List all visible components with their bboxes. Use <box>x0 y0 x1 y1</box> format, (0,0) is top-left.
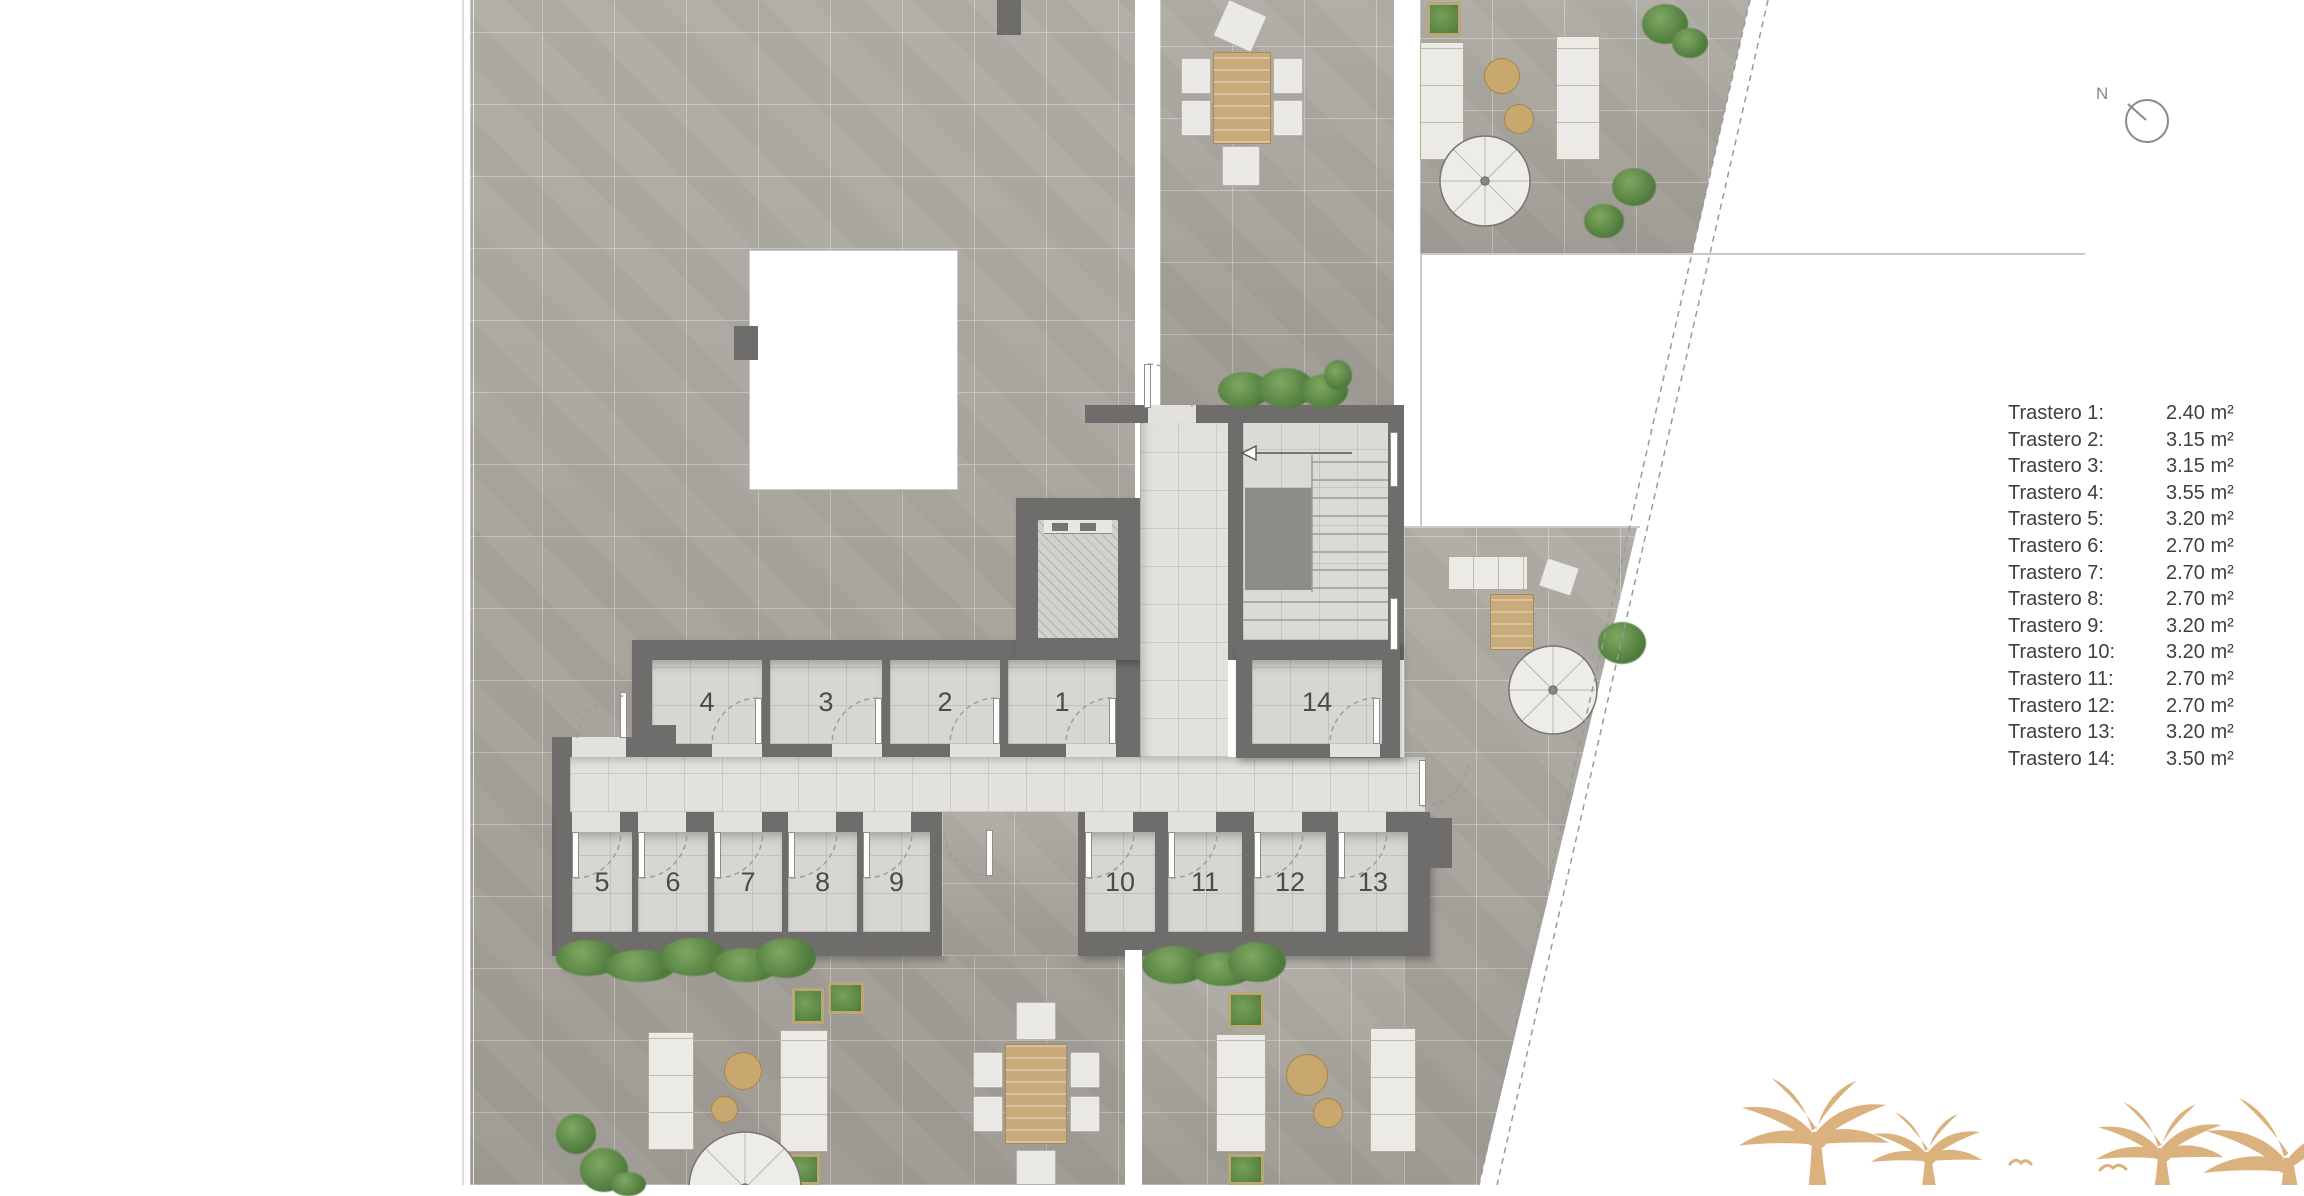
legend-label: Trastero 13: <box>2008 719 2160 746</box>
property-line-left-inner <box>473 0 474 1185</box>
birds-graphic <box>2010 1160 2126 1170</box>
legend-value: 2.70 m² <box>2166 666 2234 693</box>
legend-label: Trastero 11: <box>2008 666 2160 693</box>
bush <box>1598 622 1646 664</box>
area-legend: Trastero 1:2.40 m² Trastero 2:3.15 m² Tr… <box>2008 400 2288 772</box>
legend-row: Trastero 14:3.50 m² <box>2008 746 2288 773</box>
chair <box>1016 1150 1056 1185</box>
room-number: 5 <box>594 867 609 898</box>
door-opening <box>1338 812 1386 832</box>
chair <box>1181 58 1211 94</box>
legend-value: 3.50 m² <box>2166 746 2234 773</box>
legend-row: Trastero 10:3.20 m² <box>2008 639 2288 666</box>
door-opening <box>1085 812 1133 832</box>
planter-box <box>1427 2 1461 36</box>
door-leaf <box>1085 832 1092 878</box>
room-number: 9 <box>889 867 904 898</box>
sun-lounger <box>648 1032 694 1150</box>
door-leaf <box>993 698 1000 744</box>
door-leaf <box>572 832 579 878</box>
trastero-room-1: 1 <box>1008 660 1116 744</box>
legend-value: 2.40 m² <box>2166 400 2234 427</box>
legend-label: Trastero 8: <box>2008 586 2160 613</box>
side-table <box>724 1052 762 1090</box>
side-table <box>1484 58 1520 94</box>
legend-label: Trastero 4: <box>2008 480 2160 507</box>
legend-row: Trastero 4:3.55 m² <box>2008 480 2288 507</box>
wall-notch-room4 <box>652 725 676 744</box>
trastero-room-10: 10 <box>1085 832 1155 932</box>
terrace-divider-wall <box>1125 950 1142 1185</box>
bush <box>1228 942 1286 982</box>
legend-value: 3.55 m² <box>2166 480 2234 507</box>
sun-lounger <box>780 1030 828 1152</box>
legend-value: 2.70 m² <box>2166 560 2234 587</box>
room-number: 13 <box>1358 867 1388 898</box>
roof-opening-left <box>749 250 958 490</box>
chair <box>1273 58 1303 94</box>
legend-value: 3.20 m² <box>2166 639 2234 666</box>
planter-box <box>788 1154 820 1185</box>
legend-value: 2.70 m² <box>2166 586 2234 613</box>
legend-value: 3.20 m² <box>2166 719 2234 746</box>
planter-box <box>1228 992 1264 1028</box>
bush <box>1672 28 1708 58</box>
room-number: 8 <box>815 867 830 898</box>
stair-window <box>1390 598 1398 650</box>
elevator-mechanism-right <box>1080 523 1096 531</box>
legend-row: Trastero 3:3.15 m² <box>2008 453 2288 480</box>
room-number: 3 <box>818 687 833 718</box>
door-opening <box>572 812 620 832</box>
chair <box>973 1052 1003 1088</box>
elevator-shaft <box>1038 520 1118 638</box>
terrace-divider-wall <box>1394 0 1420 255</box>
legend-row: Trastero 7:2.70 m² <box>2008 560 2288 587</box>
legend-value: 2.70 m² <box>2166 693 2234 720</box>
legend-value: 3.15 m² <box>2166 427 2234 454</box>
door-leaf <box>986 830 993 876</box>
bush <box>556 1114 596 1154</box>
door-opening <box>863 812 911 832</box>
planter-box <box>792 988 824 1024</box>
legend-row: Trastero 9:3.20 m² <box>2008 613 2288 640</box>
pillar-mid <box>734 326 758 360</box>
room-number: 11 <box>1191 867 1219 898</box>
legend-label: Trastero 7: <box>2008 560 2160 587</box>
bush <box>1612 168 1656 206</box>
chair <box>1181 100 1211 136</box>
legend-label: Trastero 3: <box>2008 453 2160 480</box>
door-opening <box>832 744 882 757</box>
side-table <box>1313 1098 1343 1128</box>
door-leaf <box>620 692 627 738</box>
door-leaf <box>1373 698 1380 744</box>
door-opening <box>950 744 1000 757</box>
legend-label: Trastero 14: <box>2008 746 2160 773</box>
legend-label: Trastero 1: <box>2008 400 2160 427</box>
legend-label: Trastero 6: <box>2008 533 2160 560</box>
north-label: N <box>2096 84 2108 104</box>
property-line-left <box>462 0 464 1185</box>
door-leaf <box>1109 698 1116 744</box>
side-table <box>1286 1054 1328 1096</box>
terrace-bottom-right <box>1135 956 1404 1185</box>
stair-window <box>1390 432 1398 487</box>
corridor-horizontal <box>570 757 1425 812</box>
door-leaf <box>863 832 870 878</box>
door-opening <box>1168 812 1216 832</box>
room-number: 1 <box>1054 687 1069 718</box>
room-number: 7 <box>740 867 755 898</box>
planter-box <box>828 982 864 1014</box>
door-leaf <box>1254 832 1261 878</box>
room-number: 2 <box>937 687 952 718</box>
bush <box>1584 204 1624 238</box>
door-leaf <box>714 832 721 878</box>
legend-row: Trastero 5:3.20 m² <box>2008 506 2288 533</box>
door-leaf <box>755 698 762 744</box>
trastero-room-12: 12 <box>1254 832 1326 932</box>
side-table <box>711 1096 738 1123</box>
room-number: 4 <box>699 687 714 718</box>
sun-lounger <box>1556 36 1600 160</box>
door-opening <box>1254 812 1302 832</box>
passage-between-9-and-10 <box>942 812 1078 956</box>
room-number: 10 <box>1105 867 1135 898</box>
room-number: 14 <box>1302 687 1332 718</box>
door-opening <box>572 737 626 757</box>
palm-trees-graphic <box>1739 1078 2304 1185</box>
roof-opening-right-bottom-edge <box>1392 526 1640 528</box>
north-compass-icon <box>2126 100 2168 142</box>
door-leaf <box>638 832 645 878</box>
door-leaf <box>1144 364 1151 408</box>
planter-box <box>1228 1154 1264 1185</box>
trastero-room-9: 9 <box>863 832 930 932</box>
trastero-room-7: 7 <box>714 832 782 932</box>
wall-lower-right-nub <box>1430 818 1452 868</box>
door-leaf <box>1338 832 1345 878</box>
legend-row: Trastero 11:2.70 m² <box>2008 666 2288 693</box>
chair <box>1070 1052 1100 1088</box>
legend-label: Trastero 10: <box>2008 639 2160 666</box>
elevator-mechanism-left <box>1052 523 1068 531</box>
chair <box>1016 1002 1056 1040</box>
trastero-room-2: 2 <box>890 660 1000 744</box>
floor-plan-page: { "compass": { "label": "N" }, "rooms": … <box>0 0 2304 1185</box>
room-number: 12 <box>1275 867 1305 898</box>
door-opening <box>788 812 836 832</box>
trastero-room-8: 8 <box>788 832 857 932</box>
legend-row: Trastero 2:3.15 m² <box>2008 427 2288 454</box>
dining-table <box>1490 594 1534 650</box>
trastero-room-6: 6 <box>638 832 708 932</box>
chair <box>1070 1096 1100 1132</box>
sun-lounger <box>1370 1028 1416 1152</box>
chair <box>1222 146 1260 186</box>
sun-lounger <box>1420 42 1464 160</box>
side-table <box>1504 104 1534 134</box>
side-table <box>1532 648 1556 672</box>
chair <box>973 1096 1003 1132</box>
door-opening <box>1066 744 1116 757</box>
trastero-room-14: 14 <box>1252 660 1382 744</box>
trastero-room-11: 11 <box>1168 832 1242 932</box>
sun-lounger <box>1216 1034 1266 1152</box>
door-opening <box>1148 405 1196 423</box>
door-leaf <box>875 698 882 744</box>
bush <box>610 1172 646 1196</box>
legend-label: Trastero 12: <box>2008 693 2160 720</box>
legend-label: Trastero 2: <box>2008 427 2160 454</box>
legend-row: Trastero 8:2.70 m² <box>2008 586 2288 613</box>
legend-value: 3.20 m² <box>2166 613 2234 640</box>
trastero-room-3: 3 <box>770 660 882 744</box>
legend-label: Trastero 5: <box>2008 506 2160 533</box>
door-opening <box>1330 744 1380 757</box>
legend-value: 2.70 m² <box>2166 533 2234 560</box>
trastero-room-5: 5 <box>572 832 632 932</box>
legend-value: 3.15 m² <box>2166 453 2234 480</box>
door-opening <box>714 812 762 832</box>
door-leaf <box>788 832 795 878</box>
trastero-room-13: 13 <box>1338 832 1408 932</box>
legend-row: Trastero 6:2.70 m² <box>2008 533 2288 560</box>
legend-value: 3.20 m² <box>2166 506 2234 533</box>
legend-row: Trastero 1:2.40 m² <box>2008 400 2288 427</box>
dining-table <box>1213 52 1271 144</box>
bush <box>1324 360 1352 390</box>
room-number: 6 <box>665 867 680 898</box>
legend-row: Trastero 13:3.20 m² <box>2008 719 2288 746</box>
wall-stair-left <box>1228 420 1243 660</box>
chair <box>1273 100 1303 136</box>
door-opening <box>638 812 686 832</box>
corridor-vertical <box>1140 423 1228 757</box>
dining-table <box>1005 1044 1067 1144</box>
sun-lounger <box>1448 556 1528 590</box>
door-opening <box>712 744 762 757</box>
pillar-top <box>997 0 1021 35</box>
roof-opening-right-top-edge <box>1420 253 2085 255</box>
legend-label: Trastero 9: <box>2008 613 2160 640</box>
door-leaf <box>1168 832 1175 878</box>
bush <box>756 938 816 978</box>
door-leaf <box>1419 760 1426 806</box>
roof-opening-right-left-edge <box>1420 255 1422 528</box>
stair-landing <box>1245 488 1312 590</box>
legend-row: Trastero 12:2.70 m² <box>2008 693 2288 720</box>
